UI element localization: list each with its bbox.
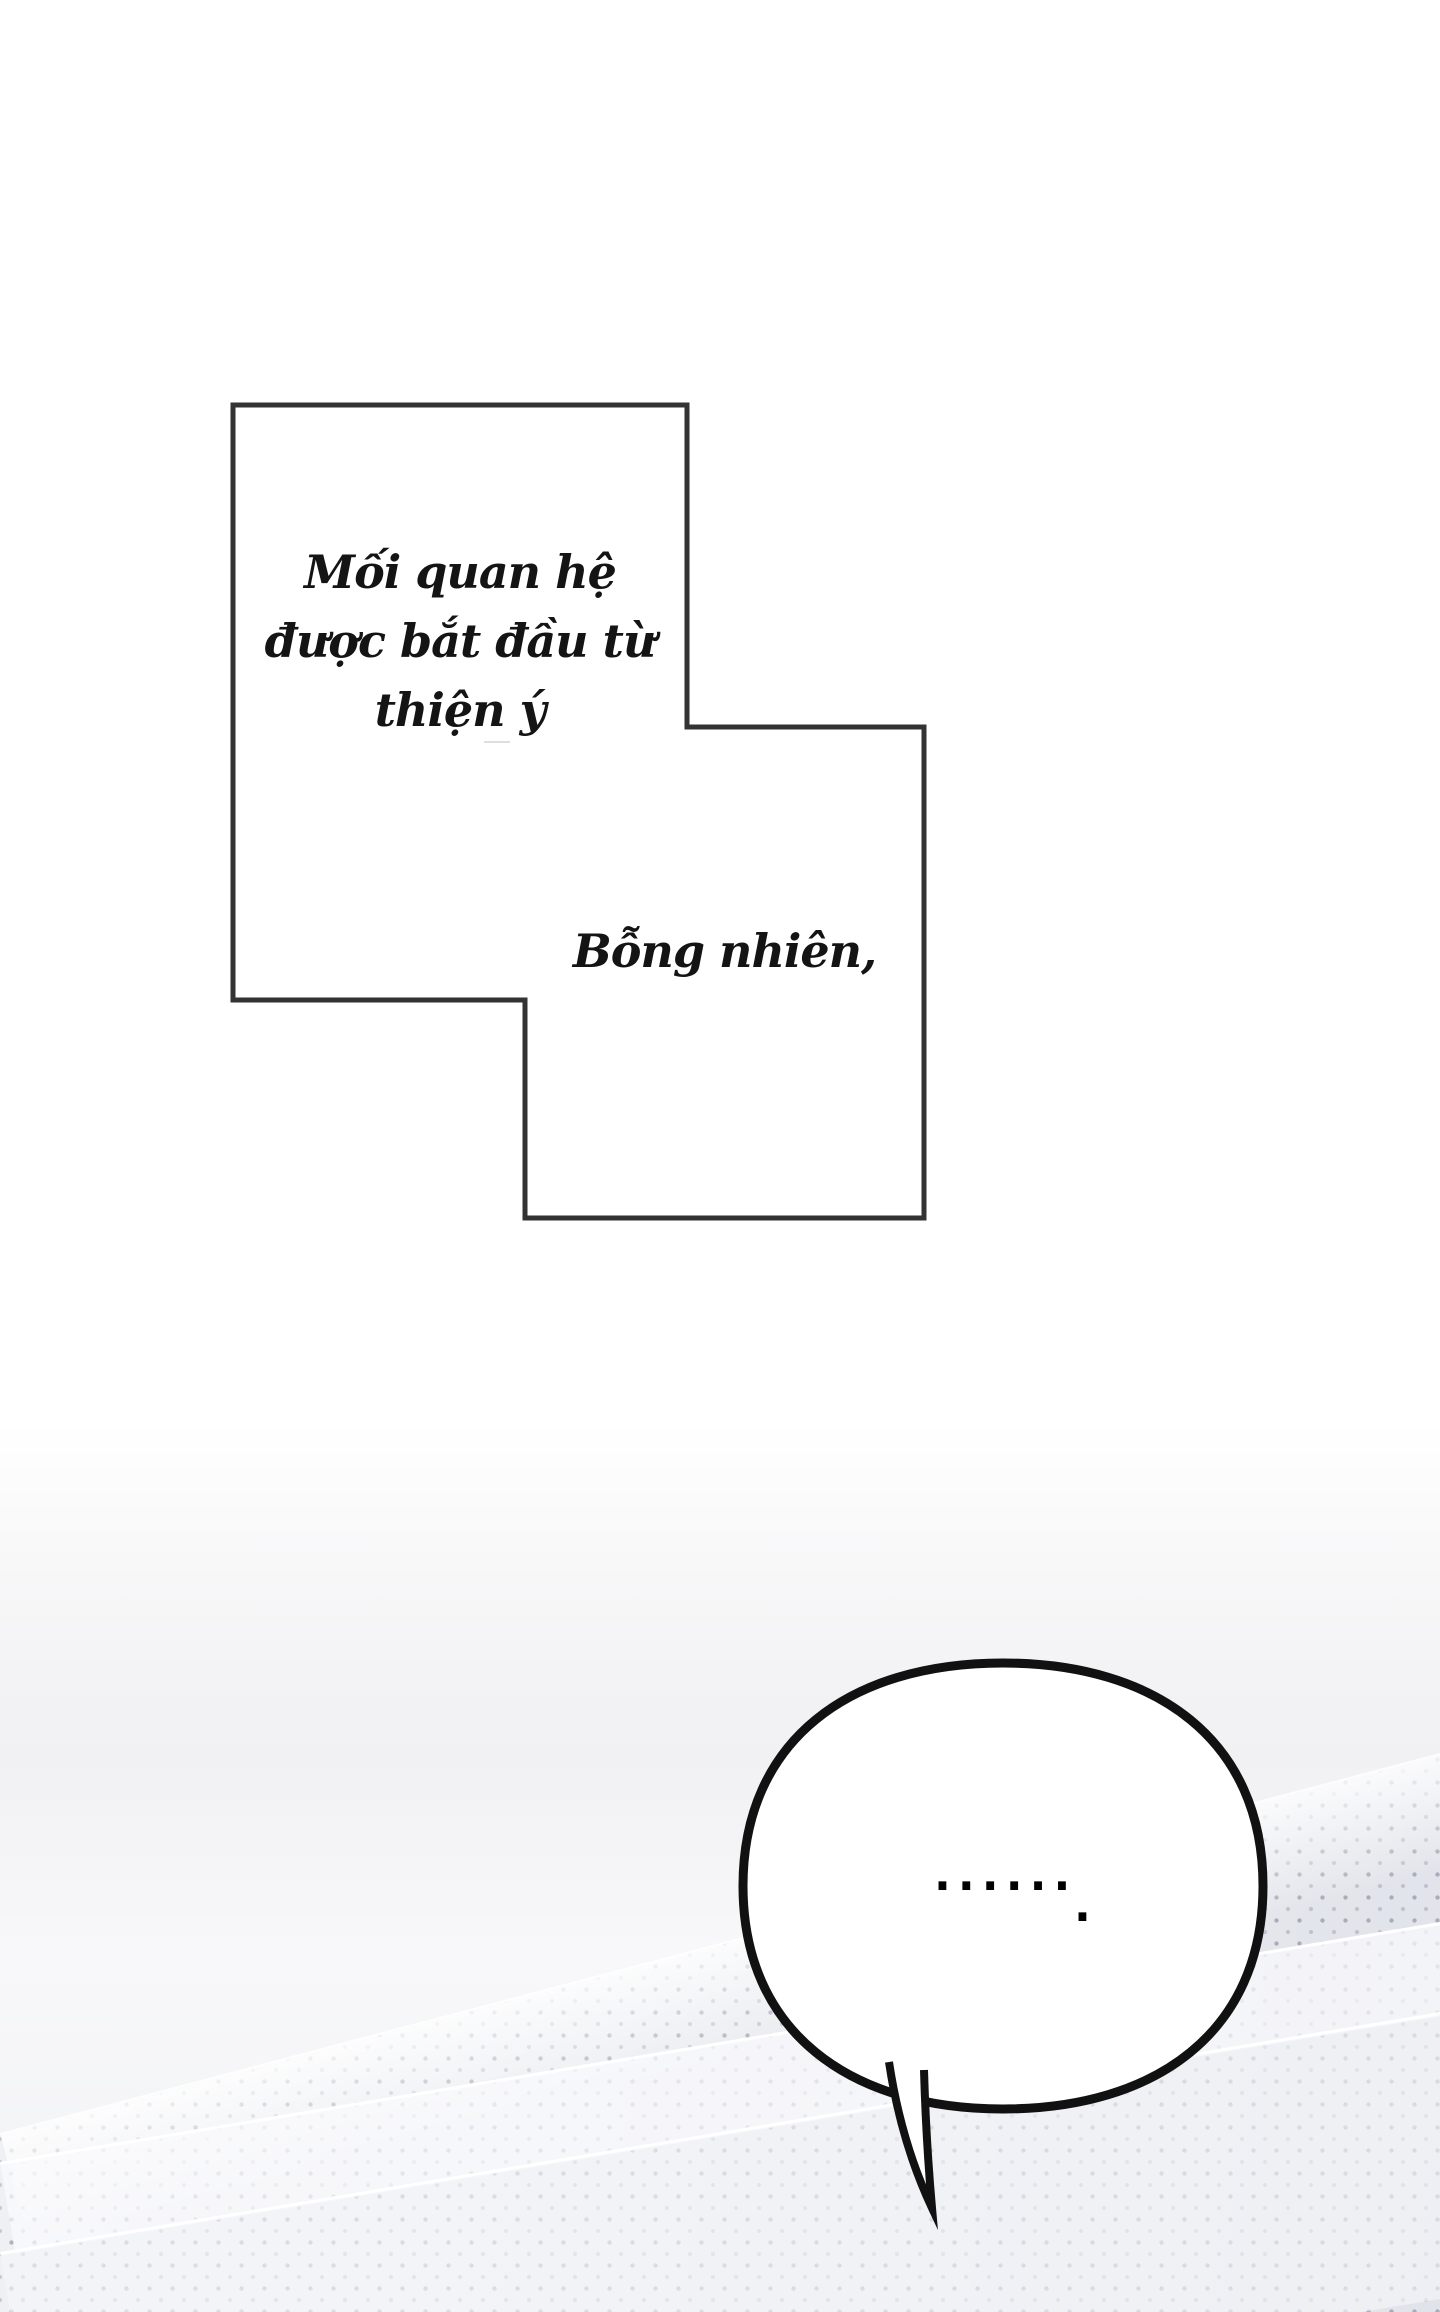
caption-line: được bắt đầu từ [233, 607, 687, 676]
webtoon-page: Mối quan hệ được bắt đầu từ thiện ý Bỗng… [0, 0, 1440, 2312]
bubble-ellipsis-dots: ...... [928, 1850, 1071, 1898]
caption-box-2: Bỗng nhiên, [525, 917, 924, 986]
speech-bubble-tail [889, 2062, 932, 2208]
bubble-ellipsis-period: . [1068, 1881, 1097, 1929]
caption-line: Mối quan hệ [233, 538, 687, 607]
caption-box-1: Mối quan hệ được bắt đầu từ thiện ý [233, 538, 687, 745]
stray-mark [484, 741, 510, 743]
caption-line: thiện ý [233, 676, 687, 745]
panel-artwork [0, 0, 1440, 2312]
caption-line: Bỗng nhiên, [525, 917, 924, 986]
caption-panels-outline [233, 405, 924, 1218]
